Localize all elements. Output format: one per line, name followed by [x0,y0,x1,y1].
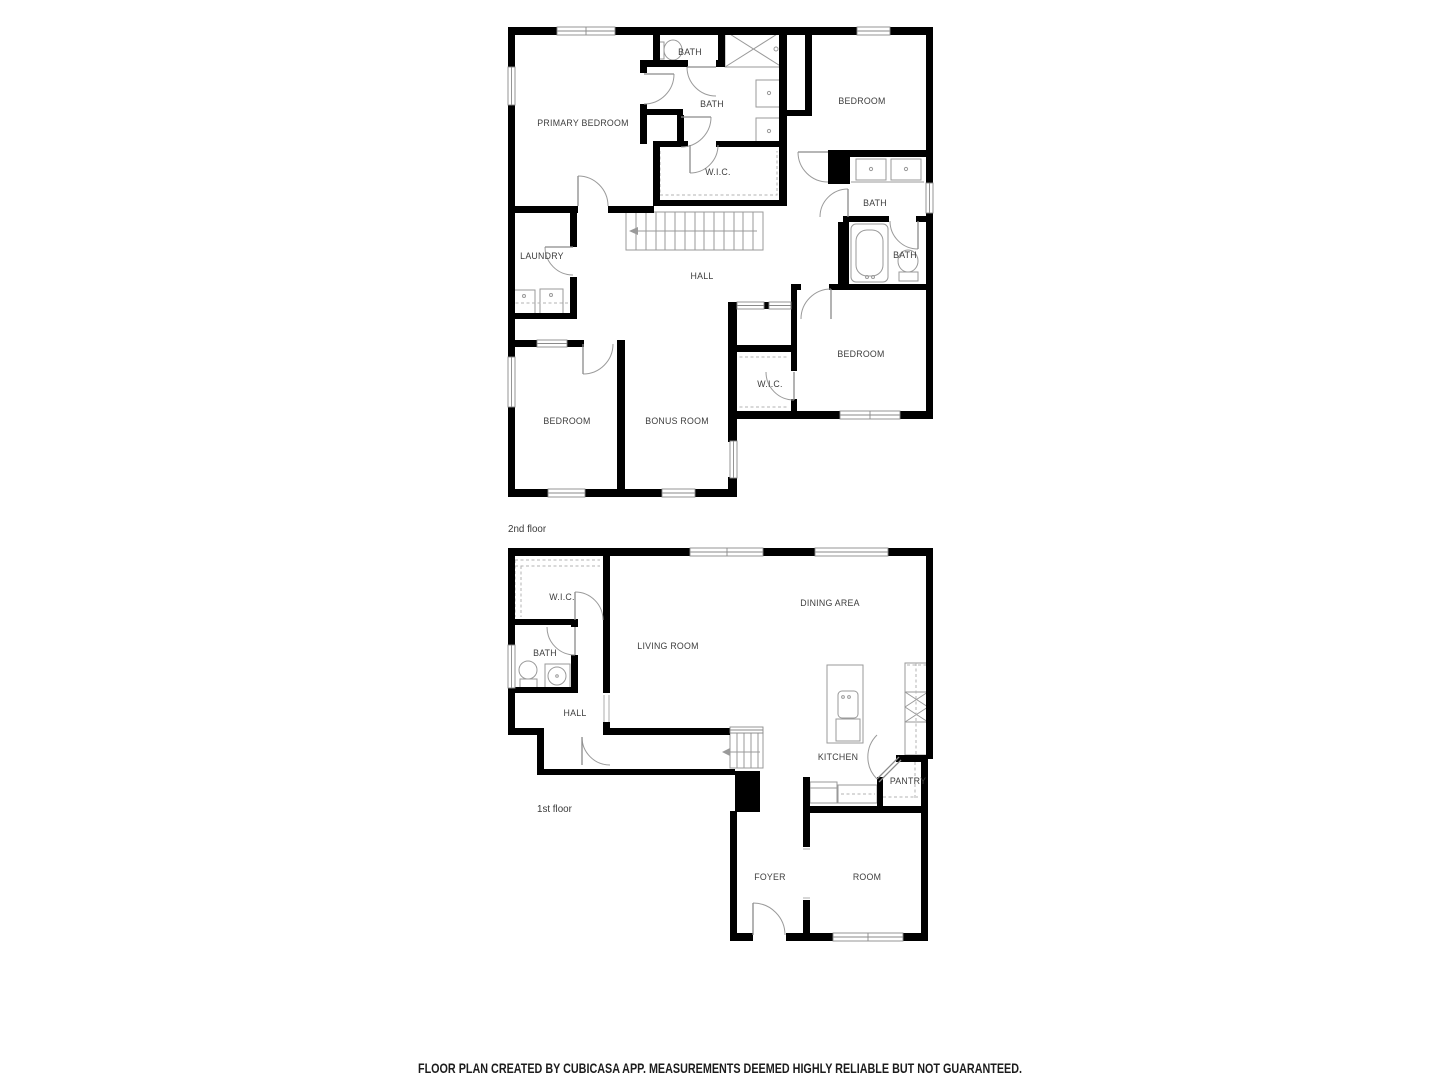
room-label-wic-1f: W.I.C. [549,592,574,602]
room-label-bedroom-bottom-right: BEDROOM [837,349,884,359]
second-floor-title: 2nd floor [508,524,547,535]
room-label-wic-bedroom: W.I.C. [757,379,782,389]
room-label-dining-area: DINING AREA [800,598,859,608]
first-floor-plan: W.I.C. DINING AREA LIVING ROOM BATH HALL… [508,548,933,941]
room-label-bedroom-top-right: BEDROOM [838,96,885,106]
room-label-kitchen: KITCHEN [818,752,858,762]
floor-plan-page: PRIMARY BEDROOM BATH BATH W.I.C. BEDROOM… [0,0,1440,1080]
room-label-bath-main: BATH [700,99,724,109]
first-floor-fixtures [519,661,928,898]
room-label-bath-1f: BATH [533,648,557,658]
room-label-wic-primary: W.I.C. [705,167,730,177]
room-label-primary-bedroom: PRIMARY BEDROOM [537,118,628,128]
room-label-bath-top: BATH [678,47,702,57]
room-label-bonus-room: BONUS ROOM [645,416,709,426]
room-label-bath-right-upper: BATH [863,198,887,208]
room-label-pantry: PANTRY [890,776,926,786]
first-floor-walls [508,548,933,941]
footer-disclaimer: FLOOR PLAN CREATED BY CUBICASA APP. MEAS… [418,1060,1022,1076]
stairs-up-arrow [722,748,730,756]
stairs-down-arrow [629,227,638,235]
room-label-hall-2f: HALL [690,271,713,281]
room-label-living-room: LIVING ROOM [637,641,698,651]
first-floor-doors [547,592,901,935]
first-floor-title: 1st floor [537,804,573,815]
second-floor-plan: PRIMARY BEDROOM BATH BATH W.I.C. BEDROOM… [508,27,933,535]
room-label-laundry: LAUNDRY [520,251,564,261]
second-floor-closet-dashes [510,151,789,407]
room-label-room: ROOM [853,872,881,882]
floor-plan-canvas: PRIMARY BEDROOM BATH BATH W.I.C. BEDROOM… [0,0,1440,1080]
room-label-bath-right-lower: BATH [893,250,917,260]
room-label-hall-1f: HALL [563,708,586,718]
room-label-foyer: FOYER [754,872,786,882]
room-label-bedroom-bottom-left: BEDROOM [543,416,590,426]
